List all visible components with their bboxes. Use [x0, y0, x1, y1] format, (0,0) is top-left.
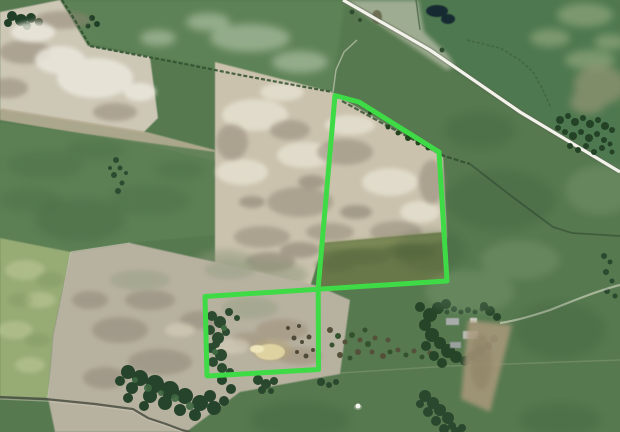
sand-pit-bright-spot — [250, 345, 264, 353]
satellite-map-view[interactable] — [0, 0, 620, 432]
farm-building-3 — [450, 342, 461, 348]
map-canvas — [0, 0, 620, 432]
terrain-layer — [0, 0, 620, 432]
soil-strip-farm-smudge — [470, 334, 492, 390]
farm-building-1 — [446, 318, 459, 325]
white-object — [356, 404, 361, 409]
